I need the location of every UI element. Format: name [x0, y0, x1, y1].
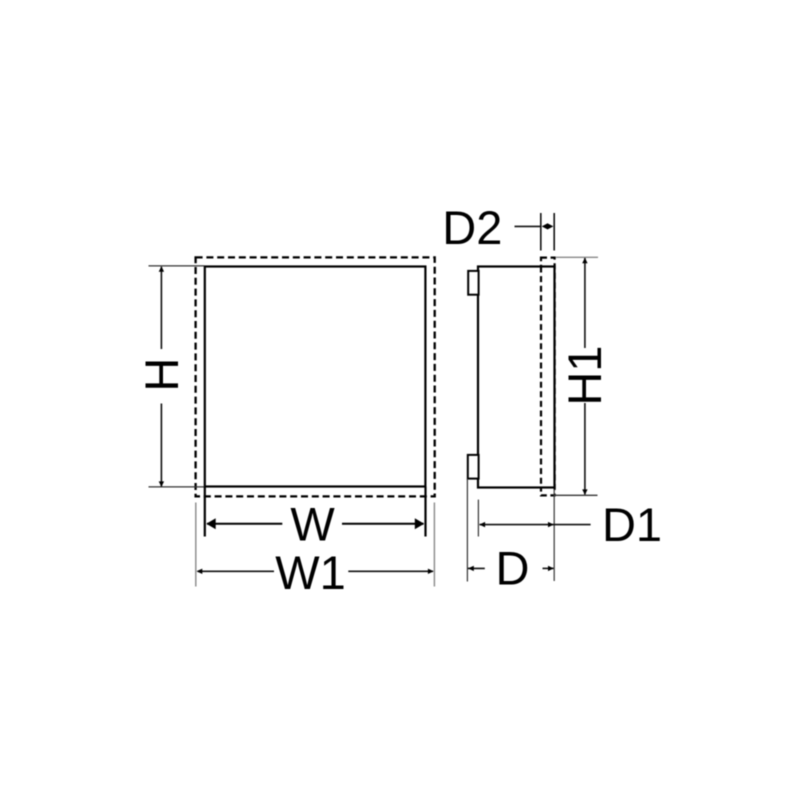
svg-text:D: D	[496, 541, 530, 594]
svg-text:H: H	[135, 358, 188, 392]
svg-text:D2: D2	[442, 201, 502, 254]
svg-text:H1: H1	[558, 346, 611, 406]
svg-text:D1: D1	[602, 498, 662, 551]
svg-text:W1: W1	[275, 546, 346, 599]
svg-text:W: W	[290, 497, 335, 550]
